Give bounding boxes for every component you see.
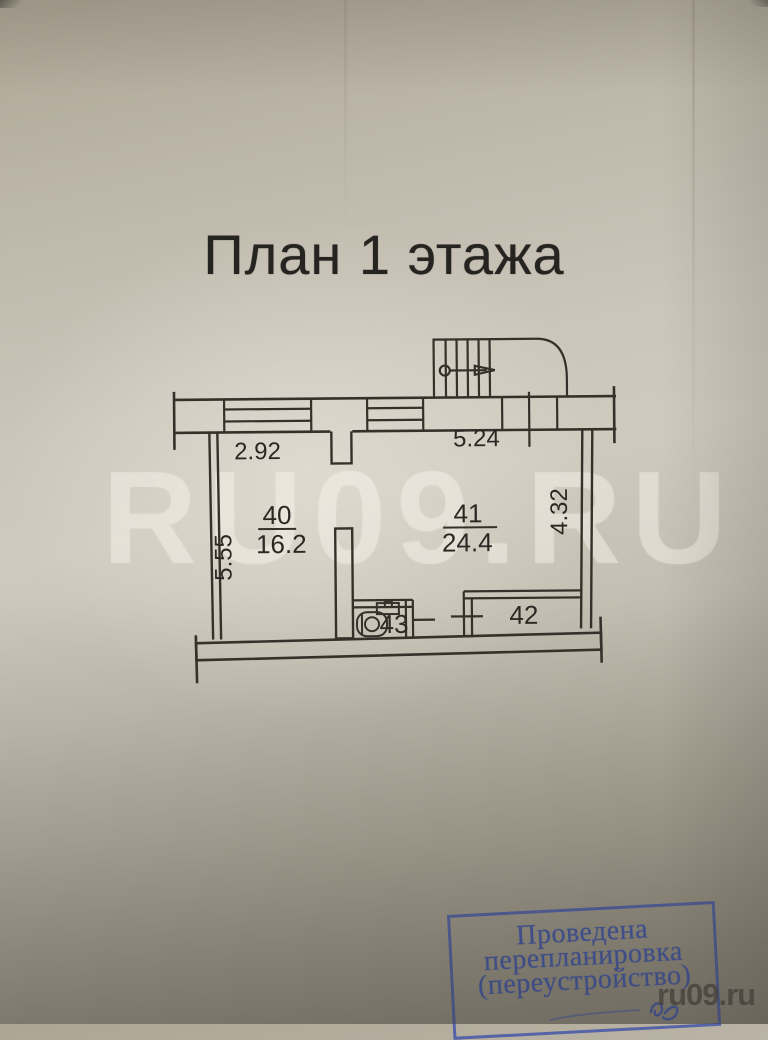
room-40-area: 16.2 <box>256 529 307 559</box>
photographed-document: { "page": { "title": "План 1 этажа" }, "… <box>0 0 768 1024</box>
floor-plan-svg: 2.92 5.24 5.55 4.32 40 16.2 41 24.4 42 4… <box>166 331 621 687</box>
dimension-right: 4.32 <box>546 488 573 535</box>
room-42-number: 42 <box>509 600 538 630</box>
room-41-area: 24.4 <box>442 527 493 557</box>
wall-stub <box>331 431 351 463</box>
dimension-left: 5.55 <box>210 534 237 581</box>
staircase <box>434 338 568 397</box>
floor-plan-drawing: 2.92 5.24 5.55 4.32 40 16.2 41 24.4 42 4… <box>166 331 621 687</box>
page-title: План 1 этажа <box>0 222 768 287</box>
dimension-top-left: 2.92 <box>234 438 281 465</box>
paper-crease-left <box>344 0 347 230</box>
outer-wall-right <box>579 429 594 628</box>
room-40-number: 40 <box>262 500 291 530</box>
window-1 <box>224 399 311 433</box>
room-41-number: 41 <box>453 498 482 528</box>
photo-corner-top-right <box>742 0 768 7</box>
photo-corner-top-left <box>0 0 30 8</box>
interior-wall <box>335 528 353 638</box>
corner-watermark: ru09.ru <box>657 977 755 1013</box>
approval-stamp: Проведена перепланировка (переустройство… <box>447 901 721 1040</box>
window-2 <box>367 398 423 431</box>
dimension-top-right: 5.24 <box>453 425 500 452</box>
room-43-number: 43 <box>379 609 408 639</box>
